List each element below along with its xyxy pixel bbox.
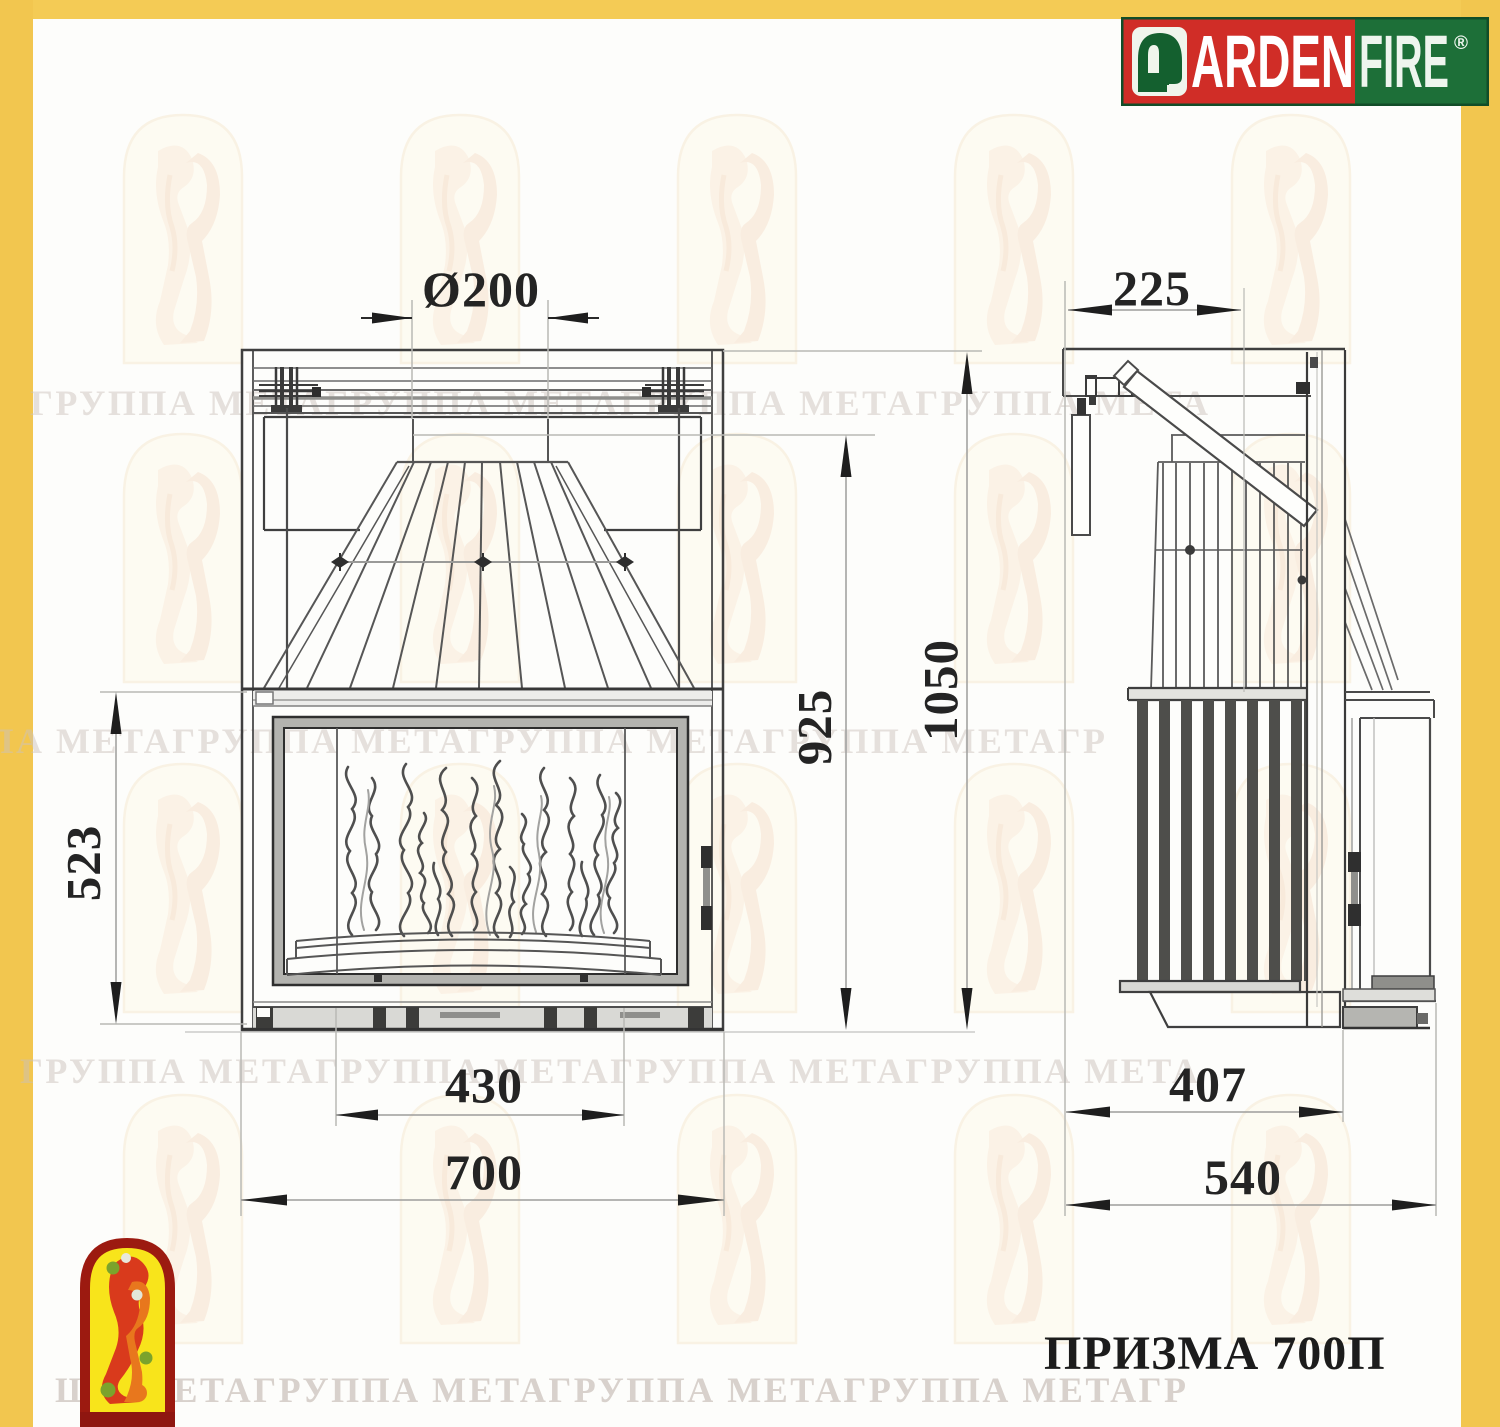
svg-text:430: 430 <box>445 1057 523 1113</box>
svg-text:925: 925 <box>787 689 842 766</box>
svg-text:523: 523 <box>56 825 111 902</box>
svg-text:®: ® <box>1454 33 1468 54</box>
svg-text:1050: 1050 <box>913 639 968 741</box>
svg-text:225: 225 <box>1113 260 1191 316</box>
svg-text:Ø200: Ø200 <box>422 261 540 317</box>
svg-text:540: 540 <box>1204 1149 1282 1205</box>
svg-text:FIRE: FIRE <box>1359 20 1449 103</box>
svg-text:407: 407 <box>1169 1056 1247 1112</box>
svg-text:700: 700 <box>445 1144 523 1200</box>
svg-text:ARDEN: ARDEN <box>1191 20 1354 103</box>
